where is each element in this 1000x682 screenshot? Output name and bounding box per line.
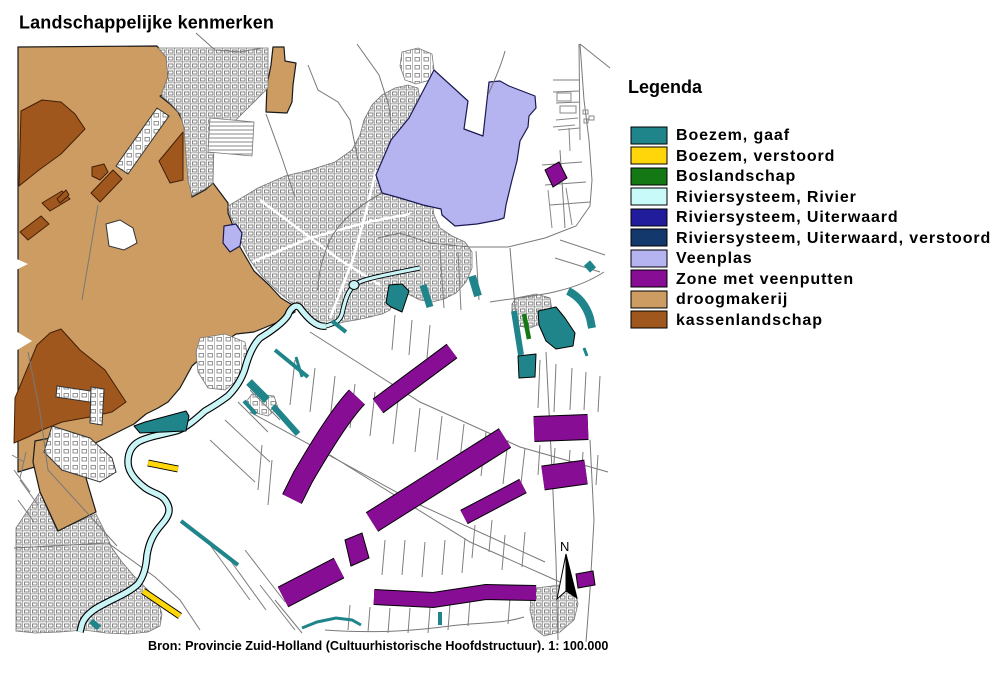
svg-text:Landschappelijke kenmerken: Landschappelijke kenmerken (19, 13, 274, 33)
svg-text:Boezem, verstoord: Boezem, verstoord (676, 148, 835, 165)
svg-text:kassenlandschap: kassenlandschap (676, 312, 823, 329)
svg-text:Boezem, gaaf: Boezem, gaaf (676, 127, 790, 144)
svg-text:Riviersysteem, Rivier: Riviersysteem, Rivier (676, 189, 857, 206)
svg-text:Riviersysteem, Uiterwaard, ver: Riviersysteem, Uiterwaard, verstoord (676, 230, 991, 247)
svg-text:Legenda: Legenda (628, 77, 703, 97)
svg-text:Veenplas: Veenplas (676, 250, 753, 267)
svg-text:droogmakerij: droogmakerij (676, 291, 788, 308)
svg-text:Boslandschap: Boslandschap (676, 168, 796, 185)
svg-text:Zone met veenputten: Zone met veenputten (676, 271, 854, 288)
svg-text:Riviersysteem, Uiterwaard: Riviersysteem, Uiterwaard (676, 209, 899, 226)
svg-text:Bron: Provincie Zuid-Holland (: Bron: Provincie Zuid-Holland (Cultuurhis… (148, 639, 608, 653)
svg-text:N: N (560, 539, 569, 554)
